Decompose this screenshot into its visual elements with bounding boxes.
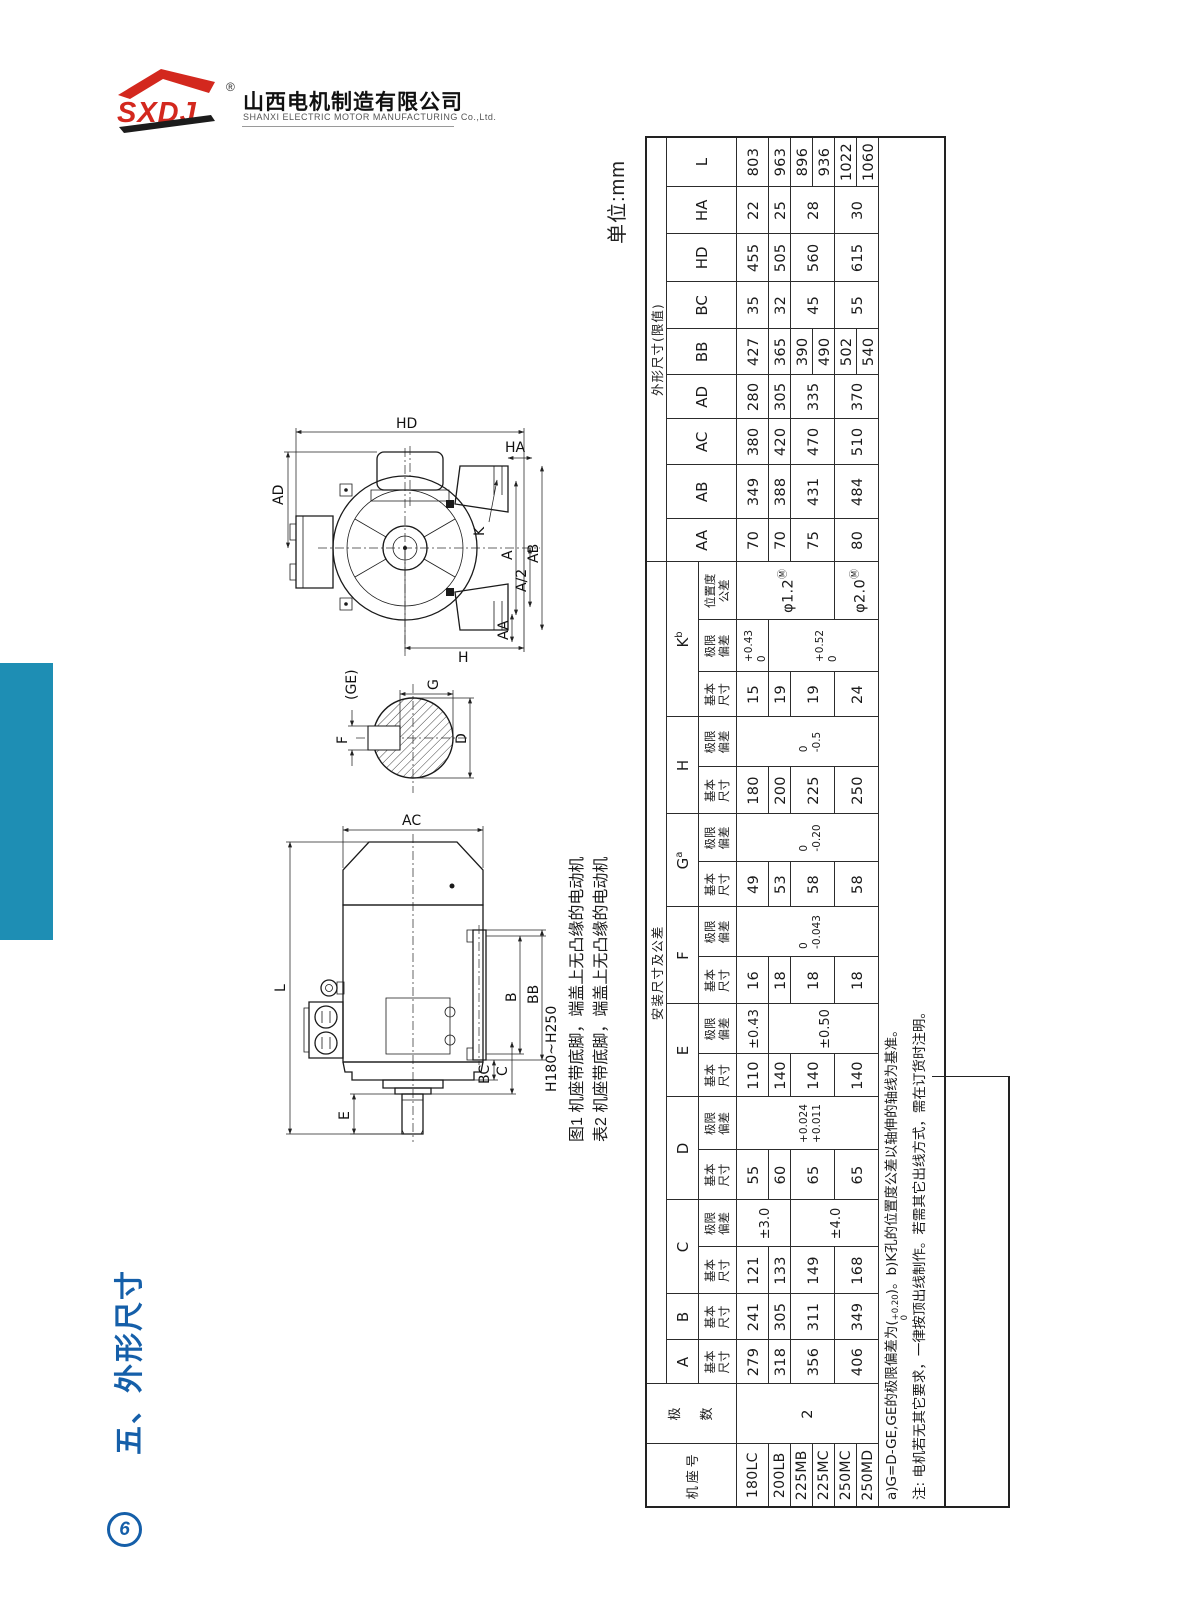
header-col-L: L (667, 137, 737, 187)
cell-K_pos-r0: φ1.2Ⓜ (737, 562, 835, 620)
cell-D_basic-r1: 60 (769, 1150, 791, 1200)
cell-D_basic-r4: 65 (835, 1150, 879, 1200)
cell-K_basic-r0: 15 (737, 672, 769, 717)
cell-F_basic-r0: 16 (737, 957, 769, 1004)
cell-D_basic-r0: 55 (737, 1150, 769, 1200)
tolerance-stack: 0-0.043 (798, 915, 823, 949)
cell-H_basic-r4: 250 (835, 767, 879, 814)
cell-D_dev-r0: +0.024+0.011 (737, 1097, 879, 1150)
cell-AA-r1: 70 (769, 519, 791, 562)
cell-AA-r4: 80 (835, 519, 879, 562)
cell-H_dev-r0: 0-0.5 (737, 717, 879, 767)
cell-A_basic-r1: 318 (769, 1340, 791, 1384)
cell-E_basic-r0: 110 (737, 1054, 769, 1097)
cell-A_basic-r2: 356 (791, 1340, 835, 1384)
header-col-C: C (667, 1200, 699, 1294)
logo-roof-shape (118, 69, 215, 99)
tolerance-stack: +0.024+0.011 (798, 1104, 823, 1143)
page-number: 6 (119, 1519, 130, 1541)
cell-B_basic-r1: 305 (769, 1294, 791, 1340)
header-col-E: E (667, 1004, 699, 1097)
cell-AB-r1: 388 (769, 465, 791, 519)
header-col-AC: AC (667, 419, 737, 465)
cell-C_basic-r2: 149 (791, 1247, 835, 1294)
header-col-AD: AD (667, 375, 737, 419)
dim-HD: HD (396, 416, 417, 432)
cell-E_basic-r2: 140 (791, 1054, 835, 1097)
cell-L-r1: 963 (769, 137, 791, 187)
header-col-F: F (667, 907, 699, 1004)
cell-BB-r1: 365 (769, 329, 791, 375)
dim-AD: AD (271, 485, 287, 505)
header-outline-group: 外形尺寸(限值) (646, 137, 667, 562)
cell-K_dev-r1: +0.520 (769, 620, 879, 672)
header-sub-D-deviation: 极限偏差 (699, 1097, 737, 1150)
cell-E_basic-r1: 140 (769, 1054, 791, 1097)
dim-E: E (337, 1111, 353, 1120)
tolerance-stack: +0.520 (814, 630, 839, 662)
registered-mark: ® (226, 80, 235, 94)
cell-G_basic-r0: 49 (737, 862, 769, 907)
cell-BB-r3: 490 (813, 329, 835, 375)
cell-D_basic-r2: 65 (791, 1150, 835, 1200)
cell-AC-r0: 380 (737, 419, 769, 465)
frame-range-label: H180~H250 (544, 1006, 560, 1092)
cell-K_basic-r1: 19 (769, 672, 791, 717)
cell-frame-225MB: 225MB (791, 1444, 813, 1507)
cell-L-r2: 896 (791, 137, 813, 187)
cell-frame-180LC: 180LC (737, 1444, 769, 1507)
tolerance-stack: 0-0.20 (798, 824, 823, 851)
header-sub-F-deviation: 极限偏差 (699, 907, 737, 957)
cell-E_dev-r1: ±0.50 (769, 1004, 879, 1054)
header-sub-K-position_tol: 位置度公差 (699, 562, 737, 620)
motor-outline-drawings: AD HD HA K A AB A/2 AA H G (GE) (260, 390, 570, 1150)
cell-HD-r4: 615 (835, 234, 879, 282)
cell-L-r5: 1060 (857, 137, 879, 187)
dim-AB: AB (526, 544, 542, 563)
cell-AD-r2: 335 (791, 375, 835, 419)
header-sub-B-basic: 基本尺寸 (699, 1294, 737, 1340)
header-sub-C-basic: 基本尺寸 (699, 1247, 737, 1294)
header-sub-H-deviation: 极限偏差 (699, 717, 737, 767)
header-col-HD: HD (667, 234, 737, 282)
cell-B_basic-r4: 349 (835, 1294, 879, 1340)
cell-E_basic-r4: 140 (835, 1054, 879, 1097)
note-b: 注: 电机若无其它要求，一律按顶出线制作。若需其它出线方式，需在订货时注明。 (910, 144, 931, 1500)
cell-B_basic-r0: 241 (737, 1294, 769, 1340)
header-sub-H-basic: 基本尺寸 (699, 767, 737, 814)
cell-HA-r2: 28 (791, 187, 835, 234)
dim-BB: BB (526, 985, 542, 1004)
logo-underline (242, 126, 454, 127)
cell-C_dev-r2: ±4.0 (791, 1200, 879, 1247)
page-number-badge: 6 (107, 1512, 142, 1547)
cell-AD-r4: 370 (835, 375, 879, 419)
cell-F_dev-r0: 0-0.043 (737, 907, 879, 957)
header-col-G: Ga (667, 814, 699, 907)
figure-captions: 图1 机座带底脚，端盖上无凸缘的电动机 表2 机座带底脚，端盖上无凸缘的电动机 (566, 770, 614, 1142)
dim-BC: BC (477, 1065, 493, 1084)
cell-frame-200LB: 200LB (769, 1444, 791, 1507)
dim-G: G (426, 679, 442, 690)
dim-L: L (273, 984, 289, 992)
note-a-tolerance: +0.200 (892, 1294, 910, 1320)
cell-F_basic-r4: 18 (835, 957, 879, 1004)
header-sub-G-deviation: 极限偏差 (699, 814, 737, 862)
cell-C_basic-r1: 133 (769, 1247, 791, 1294)
dim-K: K (472, 526, 488, 536)
cell-C_basic-r4: 168 (835, 1247, 879, 1294)
cell-B_basic-r2: 311 (791, 1294, 835, 1340)
cell-H_basic-r0: 180 (737, 767, 769, 814)
cell-frame-225MC: 225MC (813, 1444, 835, 1507)
cell-AB-r0: 349 (737, 465, 769, 519)
header-col-K: Kb (667, 562, 699, 717)
dim-F: F (335, 736, 351, 744)
header-sub-F-basic: 基本尺寸 (699, 957, 737, 1004)
cell-L-r0: 803 (737, 137, 769, 187)
cell-BB-r4: 502 (835, 329, 857, 375)
cell-AC-r4: 510 (835, 419, 879, 465)
cell-K_dev-r0: +0.430 (737, 620, 769, 672)
dimension-table: 机座号极数安装尺寸及公差外形尺寸(限值)ABCDEFGaHKbAAABACADB… (645, 136, 946, 1508)
cell-AC-r1: 420 (769, 419, 791, 465)
header-col-A: A (667, 1340, 699, 1384)
dim-A-half: A/2 (514, 569, 530, 592)
header-poles: 极数 (646, 1384, 737, 1444)
cell-AC-r2: 470 (791, 419, 835, 465)
header-col-B: B (667, 1294, 699, 1340)
header-sub-E-deviation: 极限偏差 (699, 1004, 737, 1054)
header-sub-E-basic: 基本尺寸 (699, 1054, 737, 1097)
tolerance-stack: +0.430 (743, 630, 768, 662)
table-empty-panel (932, 1076, 1010, 1508)
dim-GE: (GE) (344, 669, 360, 700)
header-install-group: 安装尺寸及公差 (646, 562, 667, 1384)
header-sub-K-basic: 基本尺寸 (699, 672, 737, 717)
cell-frame-250MC: 250MC (835, 1444, 857, 1507)
cell-H_basic-r1: 200 (769, 767, 791, 814)
table2-caption: 表2 机座带底脚，端盖上无凸缘的电动机 (590, 770, 614, 1142)
cell-BC-r2: 45 (791, 282, 835, 329)
cell-AB-r4: 484 (835, 465, 879, 519)
header-sub-A-basic: 基本尺寸 (699, 1340, 737, 1384)
cell-G_basic-r2: 58 (791, 862, 835, 907)
header-col-AB: AB (667, 465, 737, 519)
cell-HD-r1: 505 (769, 234, 791, 282)
company-name-en: SHANXI ELECTRIC MOTOR MANUFACTURING Co.,… (243, 112, 496, 122)
tolerance-stack: 0-0.5 (798, 732, 823, 753)
cell-C_basic-r0: 121 (737, 1247, 769, 1294)
dim-AA: AA (496, 620, 512, 640)
dim-A: A (500, 550, 516, 560)
header-col-D: D (667, 1097, 699, 1200)
shaft-section-drawing: G (GE) F D (335, 669, 474, 793)
end-view-drawing: AD HD HA K A AB A/2 AA H (271, 416, 542, 666)
cell-C_dev-r0: ±3.0 (737, 1200, 791, 1247)
cell-F_basic-r2: 18 (791, 957, 835, 1004)
cell-HD-r0: 455 (737, 234, 769, 282)
manual-page: { "logo": { "mark_text": "SXDJ", "regist… (0, 0, 1200, 1617)
header-col-H: H (667, 717, 699, 814)
cell-G_basic-r4: 58 (835, 862, 879, 907)
header-col-BC: BC (667, 282, 737, 329)
cell-BC-r4: 55 (835, 282, 879, 329)
cell-poles: 2 (737, 1384, 879, 1444)
cell-AB-r2: 431 (791, 465, 835, 519)
cell-BC-r1: 32 (769, 282, 791, 329)
cell-AD-r0: 280 (737, 375, 769, 419)
cell-E_dev-r0: ±0.43 (737, 1004, 769, 1054)
unit-label: 单位:mm (601, 146, 629, 244)
cell-H_basic-r2: 225 (791, 767, 835, 814)
dim-B: B (504, 992, 520, 1002)
cell-K_basic-r2: 19 (791, 672, 835, 717)
note-a: a)G=D-GE,GE的极限偏差为(+0.200)。b)K孔的位置度公差以轴伸的… (882, 144, 910, 1500)
header-col-BB: BB (667, 329, 737, 375)
cell-BB-r0: 427 (737, 329, 769, 375)
cell-K_basic-r4: 24 (835, 672, 879, 717)
cell-AD-r1: 305 (769, 375, 791, 419)
cell-A_basic-r0: 279 (737, 1340, 769, 1384)
cell-BB-r5: 540 (857, 329, 879, 375)
cell-frame-250MD: 250MD (857, 1444, 879, 1507)
dim-H: H (458, 650, 469, 666)
side-view-drawing: AC L B BB BC C E H180~H250 (273, 813, 560, 1142)
cell-BB-r2: 390 (791, 329, 813, 375)
cell-AA-r2: 75 (791, 519, 835, 562)
cell-A_basic-r4: 406 (835, 1340, 879, 1384)
dim-HA: HA (505, 440, 526, 456)
cell-HD-r2: 560 (791, 234, 835, 282)
header-col-HA: HA (667, 187, 737, 234)
header-sub-D-basic: 基本尺寸 (699, 1150, 737, 1200)
header-sub-G-basic: 基本尺寸 (699, 862, 737, 907)
sxdj-logo-icon: SXDJ (116, 66, 218, 134)
cell-AA-r0: 70 (737, 519, 769, 562)
header-sub-C-deviation: 极限偏差 (699, 1200, 737, 1247)
cell-G_dev-r0: 0-0.20 (737, 814, 879, 862)
cell-BC-r0: 35 (737, 282, 769, 329)
cell-HA-r1: 25 (769, 187, 791, 234)
cell-G_basic-r1: 53 (769, 862, 791, 907)
header-sub-K-deviation: 极限偏差 (699, 620, 737, 672)
dim-D: D (454, 733, 470, 744)
cell-HA-r0: 22 (737, 187, 769, 234)
cell-L-r4: 1022 (835, 137, 857, 187)
section-title: 五、外形尺寸 (106, 1233, 142, 1455)
cell-K_pos-r4: φ2.0Ⓜ (835, 562, 879, 620)
cell-L-r3: 936 (813, 137, 835, 187)
left-accent-bar (0, 663, 53, 940)
cell-F_basic-r1: 18 (769, 957, 791, 1004)
header-frame-no: 机座号 (646, 1444, 737, 1507)
dim-AC: AC (402, 813, 421, 829)
cell-HA-r4: 30 (835, 187, 879, 234)
header-col-AA: AA (667, 519, 737, 562)
dimension-table-wrapper: 机座号极数安装尺寸及公差外形尺寸(限值)ABCDEFGaHKbAAABACADB… (645, 138, 932, 1508)
dim-C: C (495, 1066, 511, 1076)
